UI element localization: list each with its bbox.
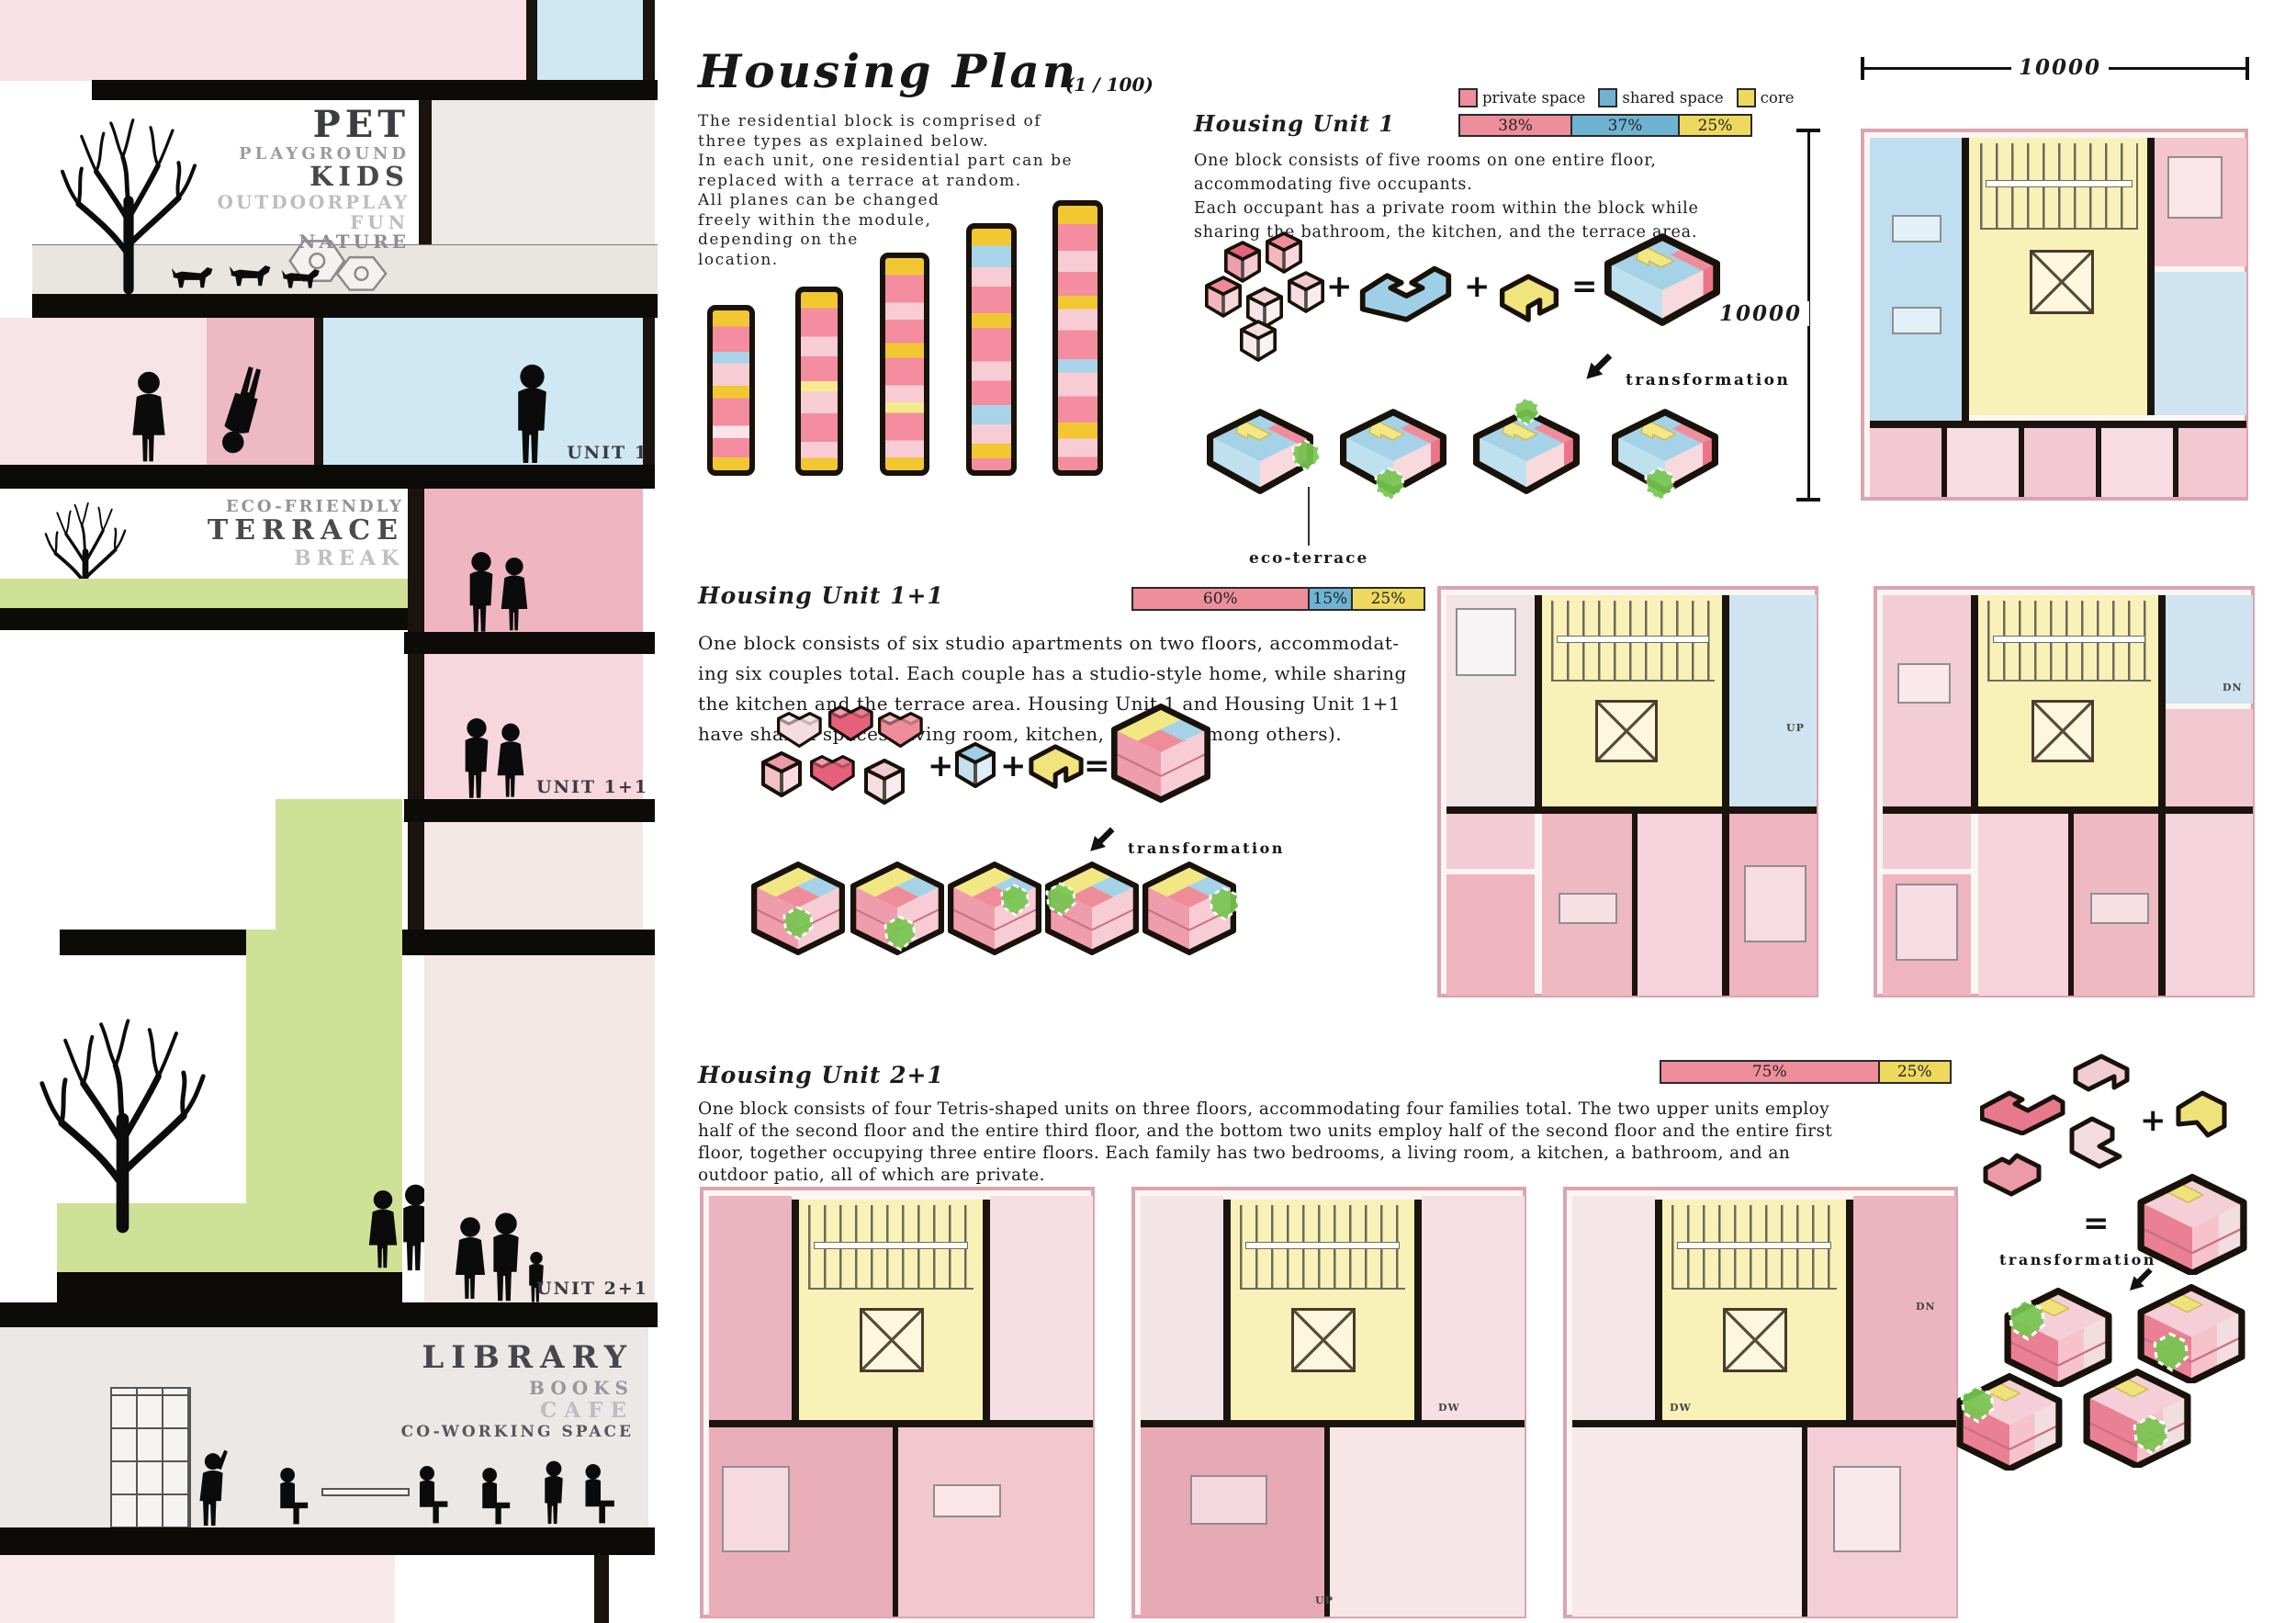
- stair-rail: [1993, 636, 2145, 643]
- plan-wall: [1870, 421, 2246, 428]
- plan-room: [1572, 1427, 1802, 1617]
- building-section: PET PLAYGROUND KIDS OUTDOORPLAY FUN NATU…: [0, 0, 684, 1623]
- plan-wall: [2158, 814, 2166, 996]
- plan-room-private: [2178, 428, 2246, 497]
- dim-label-height: 10000: [1710, 301, 1809, 326]
- section-wall: [643, 0, 655, 81]
- eco-terrace-blob-icon: [997, 884, 1034, 917]
- person-sitting-icon: [415, 1466, 454, 1525]
- studio-piece-icon: [863, 759, 906, 805]
- eco-terrace-blob-icon: [1514, 397, 1541, 426]
- bar-segment: 60%: [1133, 589, 1308, 609]
- legend-core: core: [1737, 88, 1795, 107]
- plan-wall: [1632, 814, 1638, 996]
- studio-piece-icon: [777, 712, 825, 752]
- plan-wall: [2147, 138, 2155, 415]
- plan-wall: [2019, 428, 2024, 497]
- table-icon: [1897, 663, 1951, 704]
- eco-terrace-blob-icon: [1644, 467, 1677, 502]
- unit21-ratio-bar: 75% 25%: [1660, 1060, 1952, 1084]
- elevator-icon: [860, 1308, 924, 1372]
- equals-icon: =: [2083, 1205, 2110, 1242]
- plan-room-private: [1853, 1196, 1956, 1420]
- floor-slab: [0, 1527, 655, 1555]
- plan-room-private: [2166, 814, 2253, 996]
- table-icon: [1892, 307, 1941, 334]
- plan-wall: [1722, 595, 1729, 806]
- sofa-icon: [933, 1484, 1001, 1517]
- plan-room-shared: [1870, 138, 1962, 421]
- room-cubes-icon: [1205, 276, 1242, 318]
- couple-icon: [459, 716, 494, 799]
- equals-icon: =: [1084, 748, 1110, 784]
- private-swatch-icon: [1458, 88, 1478, 107]
- tetris-piece-icon: [1980, 1080, 2066, 1135]
- eco-terrace-blob-icon: [2153, 1332, 2191, 1372]
- plan-room-private: [2166, 709, 2253, 806]
- unit1-ratio-bar: 38% 37% 25%: [1458, 114, 1752, 137]
- plan-room-private: [709, 1196, 792, 1420]
- equals-icon: =: [1571, 268, 1598, 305]
- space-legend: private space shared space core: [1458, 88, 1795, 107]
- pet-label: PET: [138, 103, 410, 146]
- plan-wall: [1971, 595, 1978, 806]
- plan-wall: [1535, 595, 1542, 806]
- plan-room-private: [2101, 428, 2173, 497]
- plan-wall: [1446, 806, 1817, 814]
- room-cubes-icon: [1266, 231, 1302, 274]
- family-icon: [452, 1214, 489, 1302]
- dim-tick: [2245, 57, 2249, 80]
- up-label: UP: [1786, 722, 1805, 734]
- plan-wall: [2096, 428, 2101, 497]
- plan-wall: [1802, 1427, 1807, 1617]
- section-wall: [408, 489, 424, 955]
- family-icon: [366, 1187, 400, 1272]
- eco-terrace-blob-icon: [2133, 1414, 2171, 1455]
- unit21-floor-plan-b: DW UP: [1131, 1187, 1526, 1618]
- unit21-floor-plan-a: [700, 1187, 1095, 1618]
- outdoorplay-label: OUTDOORPLAY: [138, 191, 410, 213]
- table-icon: [1190, 1475, 1267, 1525]
- housing-plan-poster: PET PLAYGROUND KIDS OUTDOORPLAY FUN NATU…: [0, 0, 2296, 1623]
- up-label: UP: [1315, 1595, 1334, 1606]
- library-label: LIBRARY: [349, 1339, 634, 1376]
- books-label: BOOKS: [349, 1377, 634, 1399]
- bar-segment: 25%: [1351, 589, 1424, 609]
- plan-wall: [1141, 1420, 1525, 1427]
- table-icon: [321, 1488, 410, 1496]
- plan-wall: [2068, 814, 2074, 996]
- eco-terrace-leader-line: [1308, 487, 1310, 546]
- tetris-piece-icon: [2068, 1049, 2138, 1119]
- kids-label: KIDS: [138, 161, 410, 192]
- person-reaching-icon: [193, 1447, 230, 1526]
- nature-label: NATURE: [138, 231, 410, 253]
- plan-wall: [893, 1427, 898, 1617]
- eco-terrace-blob-icon: [884, 915, 918, 952]
- eco-terrace-blob-icon: [1291, 439, 1322, 472]
- section-room-pale: [424, 822, 643, 930]
- legend-label: private space: [1482, 89, 1585, 107]
- dim-tick: [1861, 57, 1864, 80]
- stair-rail: [1677, 1242, 1831, 1249]
- core-piece-icon: [1022, 735, 1090, 799]
- unit11-ratio-bar: 60% 15% 25%: [1131, 587, 1425, 611]
- kid-icon: [540, 1459, 568, 1526]
- bar-segment: 75%: [1661, 1062, 1878, 1082]
- floor-slab: [32, 294, 658, 318]
- person-sitting-icon: [276, 1468, 314, 1526]
- eco-terrace-blob-icon: [1374, 467, 1407, 502]
- stair-rail: [1557, 636, 1709, 643]
- plan-room: [1141, 1196, 1223, 1420]
- bar-segment: 38%: [1460, 116, 1570, 135]
- bar-segment: 37%: [1570, 116, 1678, 135]
- plan-room-private: [1978, 814, 2068, 996]
- plan-wall: [1941, 428, 1947, 497]
- plus-icon: +: [1326, 268, 1353, 305]
- dim-tick: [1796, 129, 1820, 132]
- plan-wall: [1655, 1200, 1662, 1420]
- floor-slab: [402, 930, 655, 955]
- shared-piece-icon: [1357, 257, 1454, 338]
- unit1-description: One block consists of five rooms on one …: [1194, 149, 1763, 244]
- person-icon: [129, 369, 169, 465]
- bed-icon: [722, 1466, 790, 1552]
- eco-terrace-volume: [276, 799, 402, 930]
- elevator-icon: [2032, 700, 2094, 762]
- floor-slab: [0, 608, 421, 630]
- legend-label: core: [1761, 89, 1795, 107]
- section-room-blue-top: [537, 0, 643, 81]
- shared-swatch-icon: [1598, 88, 1617, 107]
- shared-piece-icon: [955, 735, 996, 795]
- room-cubes-icon: [1240, 320, 1277, 362]
- unit1-heading: Housing Unit 1: [1194, 110, 1395, 137]
- coworking-label: CO-WORKING SPACE: [349, 1423, 634, 1441]
- table-icon: [1892, 215, 1941, 242]
- person-reading-icon: [580, 1464, 621, 1525]
- bed-icon: [1833, 1466, 1901, 1552]
- unit1-floor-plan: [1861, 129, 2248, 501]
- plan-wall: [2173, 428, 2178, 497]
- core-piece-icon: [2169, 1084, 2234, 1155]
- floor-slab: [92, 80, 658, 100]
- dim-tick: [1796, 498, 1820, 502]
- floor-slab: [60, 930, 246, 955]
- unit11-tag: UNIT 1+1: [514, 777, 648, 797]
- unit21-floor-plan-c: DW DN: [1563, 1187, 1958, 1618]
- studio-piece-icon: [760, 751, 803, 797]
- plan-wall: [1722, 814, 1729, 996]
- tree-icon: [33, 974, 212, 1272]
- floor-slab: [404, 799, 655, 822]
- stair-rail: [1986, 180, 2133, 187]
- plan-wall: [1324, 1427, 1330, 1617]
- plan-room-shared: [2155, 272, 2246, 415]
- transformation-arrow-icon: [1583, 351, 1615, 382]
- sofa-icon: [1559, 893, 1617, 924]
- plan-wall: [1962, 138, 1969, 421]
- plan-wall: [2158, 595, 2166, 806]
- floor-slab: [404, 632, 655, 654]
- plan-room-private: [990, 1196, 1093, 1420]
- unit21-tag: UNIT 2+1: [514, 1279, 648, 1299]
- core-piece-icon: [1492, 265, 1566, 332]
- couple-icon: [464, 551, 499, 632]
- eco-terrace-blob-icon: [1045, 882, 1078, 917]
- cafe-label: CAFE: [349, 1398, 634, 1423]
- tetris-piece-icon: [2068, 1113, 2138, 1185]
- unit11-block-icon: [1111, 704, 1210, 803]
- tower-diagram: [966, 223, 1017, 476]
- legend-label: shared space: [1622, 89, 1723, 107]
- tower-diagram: [1052, 200, 1103, 476]
- unit11-floor-plan-b: DN: [1874, 586, 2255, 997]
- room-cubes-icon: [1288, 271, 1324, 313]
- floor-slab: [0, 1302, 658, 1327]
- eco-friendly-label: ECO-FRIENDLY: [138, 497, 404, 516]
- section-wall: [594, 1555, 609, 1623]
- eco-terrace-blob-icon: [782, 906, 816, 941]
- couple-icon: [498, 557, 531, 632]
- plan-room-private: [898, 1427, 1093, 1617]
- plan-room-private: [1870, 428, 1941, 497]
- unit1-block-icon: [1604, 233, 1720, 326]
- transformation-label: transformation: [1128, 840, 1285, 857]
- plan-wall: [1572, 1420, 1956, 1427]
- bar-segment: 15%: [1308, 589, 1351, 609]
- bed-icon: [1456, 608, 1516, 676]
- bed-icon: [2167, 156, 2223, 219]
- dn-label: DN: [2223, 682, 2243, 693]
- plan-room-private: [1638, 814, 1722, 996]
- tower-diagram: [880, 253, 929, 476]
- dw-label: DW: [1438, 1402, 1460, 1414]
- studio-piece-icon: [810, 755, 858, 795]
- dog-icon: [228, 263, 276, 292]
- floor-slab: [57, 1272, 402, 1302]
- dw-label: DW: [1670, 1402, 1692, 1414]
- plan-room: [1330, 1427, 1525, 1617]
- elevator-icon: [2030, 250, 2094, 314]
- unit21-description: One block consists of four Tetris-shaped…: [698, 1099, 1975, 1187]
- plan-room-private: [1883, 814, 1971, 869]
- section-wall: [314, 318, 323, 465]
- unit11-floor-plan-a: UP: [1437, 586, 1818, 997]
- person-sitting-icon: [478, 1468, 516, 1526]
- scale-note: (1 / 100): [1065, 73, 1154, 96]
- plan-room: [1572, 1196, 1655, 1420]
- transformation-arrow-icon: [1087, 825, 1117, 854]
- dim-label-width: 10000: [2011, 55, 2109, 80]
- plus-icon: +: [2140, 1102, 2167, 1139]
- bed-icon: [1896, 884, 1958, 961]
- tower-diagram: [795, 287, 843, 476]
- section-wall: [526, 0, 537, 81]
- unit11-room-dark: [424, 489, 643, 632]
- unit1-tag: UNIT 1: [514, 443, 648, 463]
- section-room-bottom: [0, 1555, 395, 1623]
- plan-wall: [983, 1200, 990, 1420]
- dog-icon: [170, 265, 218, 294]
- eco-terrace-blob-icon: [1960, 1385, 1997, 1424]
- eco-terrace-ground: [0, 579, 409, 608]
- stair-rail: [814, 1242, 968, 1249]
- plan-wall: [1414, 1200, 1422, 1420]
- eco-terrace-label: eco-terrace: [1249, 549, 1368, 568]
- plan-wall: [792, 1200, 799, 1420]
- legend-shared: shared space: [1598, 88, 1723, 107]
- plan-wall: [1846, 1200, 1853, 1420]
- bed-icon: [1744, 865, 1806, 942]
- studio-piece-icon: [828, 705, 876, 746]
- dog-icon: [280, 266, 324, 294]
- section-room-pink-top: [0, 0, 526, 81]
- eco-terrace-blob-icon: [1209, 885, 1242, 922]
- stair-rail: [1245, 1242, 1400, 1249]
- terrace-label: TERRACE: [138, 514, 404, 547]
- tetris-piece-icon: [1982, 1144, 2066, 1200]
- plan-wall: [709, 1420, 1093, 1427]
- elevator-icon: [1595, 700, 1658, 762]
- studio-piece-icon: [878, 712, 926, 752]
- plus-icon: +: [928, 748, 954, 784]
- elevator-icon: [1723, 1308, 1787, 1372]
- bar-segment: 25%: [1678, 116, 1750, 135]
- unit11-heading: Housing Unit 1+1: [698, 582, 944, 609]
- page-title: Housing Plan: [698, 44, 1078, 98]
- floor-slab: [0, 465, 655, 489]
- elevator-icon: [1291, 1308, 1356, 1372]
- bookshelf-icon: [110, 1387, 191, 1528]
- unit21-heading: Housing Unit 2+1: [698, 1062, 944, 1088]
- eco-terrace-blob-icon: [2008, 1299, 2048, 1341]
- plan-wall: [1223, 1200, 1231, 1420]
- tower-diagram: [707, 305, 755, 476]
- plus-icon: +: [1464, 268, 1491, 305]
- break-label: BREAK: [138, 547, 404, 570]
- plan-room-private: [2024, 428, 2096, 497]
- bar-segment: 25%: [1878, 1062, 1951, 1082]
- plan-room-private: [1446, 874, 1535, 996]
- plan-room-shared: [1729, 595, 1817, 806]
- plan-wall: [1883, 806, 2253, 814]
- legend-private: private space: [1458, 88, 1585, 107]
- sofa-icon: [2090, 893, 2149, 924]
- plan-room-private: [1446, 814, 1535, 869]
- unit1-room-pale: [0, 318, 207, 465]
- dn-label: DN: [1916, 1301, 1936, 1313]
- transformation-label: transformation: [1626, 371, 1790, 389]
- core-swatch-icon: [1737, 88, 1756, 107]
- plan-room-private: [1422, 1196, 1525, 1420]
- plan-room-private: [1947, 428, 2019, 497]
